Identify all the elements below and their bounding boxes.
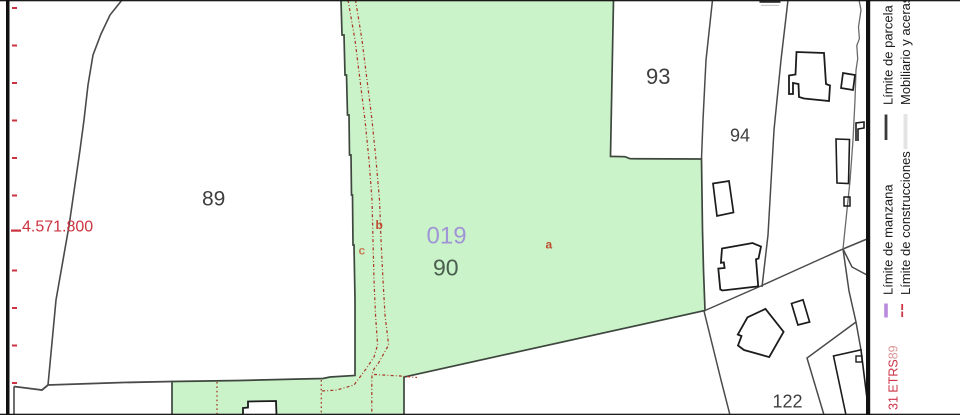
svg-text:c: c bbox=[359, 244, 366, 258]
svg-text:Mobiliario y aceras: Mobiliario y aceras bbox=[898, 0, 913, 105]
svg-text:122: 122 bbox=[773, 392, 803, 412]
svg-text:b: b bbox=[376, 218, 383, 232]
svg-text:4.571.800: 4.571.800 bbox=[22, 219, 93, 236]
svg-text:Límite de manzana: Límite de manzana bbox=[881, 184, 896, 295]
svg-text:94: 94 bbox=[730, 126, 750, 146]
svg-text:90: 90 bbox=[433, 255, 459, 281]
svg-text:Límite de construcciones: Límite de construcciones bbox=[898, 151, 913, 295]
svg-text:Límite de parcela: Límite de parcela bbox=[881, 5, 896, 105]
svg-text:93: 93 bbox=[646, 64, 670, 89]
svg-text:019: 019 bbox=[427, 223, 467, 250]
svg-text:89: 89 bbox=[202, 188, 225, 211]
svg-text:31 ETRS89: 31 ETRS89 bbox=[887, 345, 901, 410]
svg-text:a: a bbox=[546, 238, 553, 252]
